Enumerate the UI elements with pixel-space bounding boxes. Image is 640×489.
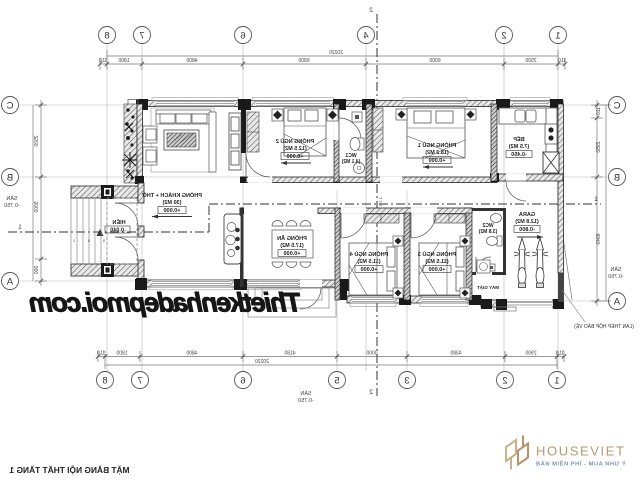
svg-text:PHÒNG NGỦ 1: PHÒNG NGỦ 1 xyxy=(418,141,457,149)
svg-text:(4.1 M2): (4.1 M2) xyxy=(341,159,360,165)
svg-text:BẢN MIỄN PHÍ - MUA NHƯ Ý: BẢN MIỄN PHÍ - MUA NHƯ Ý xyxy=(536,460,626,468)
svg-text:HIÊN: HIÊN xyxy=(112,218,125,226)
svg-text:B: B xyxy=(7,173,13,184)
svg-text:(11.5 M2): (11.5 M2) xyxy=(357,259,380,265)
svg-text:-0.040: -0.040 xyxy=(110,228,126,234)
svg-text:+0.000: +0.000 xyxy=(164,208,181,214)
svg-text:PHÒNG KHÁCH + THỜ: PHÒNG KHÁCH + THỜ xyxy=(142,191,202,199)
svg-text:2: 2 xyxy=(369,389,373,396)
svg-text:-0.750: -0.750 xyxy=(298,398,314,404)
svg-text:SÂN: SÂN xyxy=(610,266,621,273)
svg-text:(LAN THÉP HỘP BẢO VỆ): (LAN THÉP HỘP BẢO VỆ) xyxy=(574,322,634,330)
svg-text:(7.5 M2): (7.5 M2) xyxy=(509,144,530,150)
svg-text:(17.5 M2): (17.5 M2) xyxy=(280,243,304,249)
svg-text:5: 5 xyxy=(334,376,339,387)
svg-text:20220: 20220 xyxy=(255,359,269,365)
svg-text:(18.2 M2): (18.2 M2) xyxy=(425,150,449,156)
svg-text:+0.000: +0.000 xyxy=(429,267,446,273)
svg-text:2950: 2950 xyxy=(596,141,602,152)
svg-text:B: B xyxy=(614,173,620,184)
svg-text:2: 2 xyxy=(501,31,506,42)
svg-text:A: A xyxy=(613,297,620,308)
svg-text:5000: 5000 xyxy=(34,201,40,212)
svg-text:1800: 1800 xyxy=(118,58,129,64)
svg-text:C: C xyxy=(613,101,620,112)
svg-text:2900: 2900 xyxy=(525,351,536,357)
svg-text:+0.000: +0.000 xyxy=(284,251,301,257)
svg-text:900: 900 xyxy=(34,266,40,275)
svg-text:3000: 3000 xyxy=(366,351,377,357)
svg-text:6000: 6000 xyxy=(429,58,440,64)
svg-text:2: 2 xyxy=(502,376,507,387)
svg-text:6: 6 xyxy=(240,376,245,387)
svg-text:PHÒNG NGỦ 3: PHÒNG NGỦ 3 xyxy=(418,250,457,258)
svg-text:3: 3 xyxy=(404,376,409,387)
svg-text:4: 4 xyxy=(363,31,368,42)
svg-text:4800: 4800 xyxy=(186,351,197,357)
svg-text:-0.750: -0.750 xyxy=(4,203,20,209)
svg-text:+0.000: +0.000 xyxy=(287,154,304,160)
svg-text:-0.800: -0.800 xyxy=(519,227,535,233)
svg-text:2: 2 xyxy=(369,7,373,14)
svg-text:-0.450: -0.450 xyxy=(511,152,527,158)
svg-text:+0.000: +0.000 xyxy=(429,158,446,164)
svg-text:A: A xyxy=(6,277,13,288)
svg-text:SÂN: SÂN xyxy=(300,390,311,397)
svg-text:(12.8 M2): (12.8 M2) xyxy=(515,219,539,225)
svg-text:4180: 4180 xyxy=(284,351,295,357)
svg-text:8940: 8940 xyxy=(596,233,602,244)
svg-text:1: 1 xyxy=(594,196,598,203)
svg-text:SÂN: SÂN xyxy=(6,195,17,202)
svg-text:7: 7 xyxy=(137,376,142,387)
svg-text:1 2 8: 1 2 8 xyxy=(378,197,383,207)
svg-text:(12.5 M2): (12.5 M2) xyxy=(283,146,307,152)
svg-text:(30 M2): (30 M2) xyxy=(162,200,181,206)
svg-text:1: 1 xyxy=(555,31,560,42)
svg-text:8: 8 xyxy=(104,31,109,42)
svg-text:1: 1 xyxy=(18,224,22,231)
svg-text:Thietkenhadepmoi.com: Thietkenhadepmoi.com xyxy=(30,288,302,318)
svg-text:4380: 4380 xyxy=(450,351,461,357)
svg-text:(3.8 M2): (3.8 M2) xyxy=(478,229,497,235)
svg-text:MÁY GIẶT: MÁY GIẶT xyxy=(477,284,499,290)
svg-text:4800: 4800 xyxy=(186,58,197,64)
svg-text:MẶT BẰNG NỘI THẤT TẦNG 1: MẶT BẰNG NỘI THẤT TẦNG 1 xyxy=(9,464,129,475)
svg-text:PHÒNG ĂN: PHÒNG ĂN xyxy=(277,234,307,242)
svg-text:1: 1 xyxy=(554,376,559,387)
svg-text:C: C xyxy=(6,101,13,112)
svg-text:110: 110 xyxy=(99,58,107,64)
svg-text:110: 110 xyxy=(97,351,105,357)
svg-text:1800: 1800 xyxy=(116,351,127,357)
svg-text:110: 110 xyxy=(596,107,602,115)
svg-text:+0.000: +0.000 xyxy=(361,267,378,273)
svg-text:(11.5 M2): (11.5 M2) xyxy=(425,259,448,265)
svg-text:8: 8 xyxy=(102,376,107,387)
svg-text:-0.750: -0.750 xyxy=(608,274,624,280)
svg-text:7: 7 xyxy=(139,31,144,42)
svg-text:20220: 20220 xyxy=(329,50,343,56)
svg-text:2500: 2500 xyxy=(34,135,40,146)
svg-text:110: 110 xyxy=(556,351,564,357)
svg-text:6800: 6800 xyxy=(298,58,309,64)
svg-text:HOUSEVIET: HOUSEVIET xyxy=(536,444,626,459)
svg-text:GARA: GARA xyxy=(519,212,535,218)
svg-text:6: 6 xyxy=(240,31,245,42)
svg-text:PHÒNG NGỦ 2: PHÒNG NGỦ 2 xyxy=(276,137,315,145)
svg-text:BẾP: BẾP xyxy=(513,136,525,143)
svg-text:PHÒNG NGỦ 4: PHÒNG NGỦ 4 xyxy=(349,250,388,258)
svg-text:2500: 2500 xyxy=(525,58,536,64)
